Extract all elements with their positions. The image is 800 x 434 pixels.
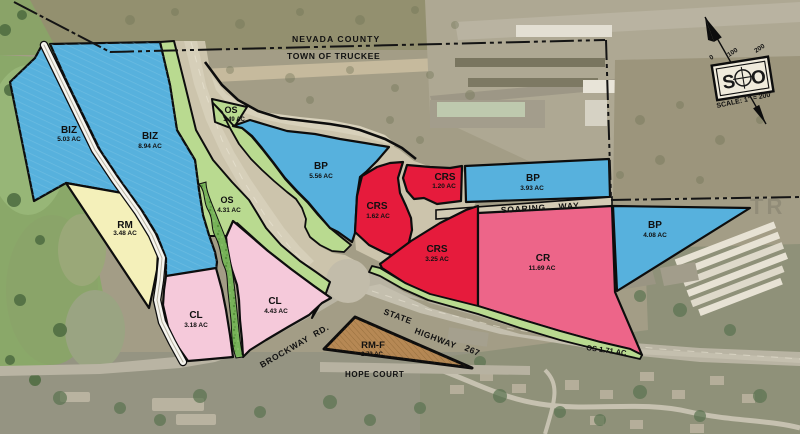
svg-text:3.93 AC: 3.93 AC	[520, 185, 544, 192]
svg-text:5.56 AC: 5.56 AC	[309, 173, 333, 180]
svg-text:CR: CR	[536, 253, 551, 264]
svg-text:CL: CL	[268, 296, 281, 307]
svg-text:CRS: CRS	[426, 244, 447, 255]
svg-text:BP: BP	[648, 220, 662, 231]
svg-text:1.62 AC: 1.62 AC	[366, 213, 390, 220]
svg-text:BP: BP	[314, 161, 328, 172]
svg-text:4.08 AC: 4.08 AC	[643, 232, 667, 239]
svg-text:TOWN OF TRUCKEE: TOWN OF TRUCKEE	[287, 51, 380, 61]
svg-text:1.20 AC: 1.20 AC	[432, 183, 456, 190]
svg-text:CL: CL	[189, 310, 202, 321]
svg-text:BIZ: BIZ	[61, 125, 77, 136]
svg-text:NEVADA COUNTY: NEVADA COUNTY	[292, 34, 380, 44]
svg-text:RM-F: RM-F	[361, 340, 385, 351]
svg-text:2.73 AC: 2.73 AC	[361, 352, 383, 358]
svg-text:BP: BP	[526, 173, 540, 184]
svg-text:1.49 AC: 1.49 AC	[223, 117, 245, 123]
svg-text:4.31 AC: 4.31 AC	[217, 207, 241, 214]
svg-text:CRS: CRS	[434, 172, 455, 183]
svg-text:3.18 AC: 3.18 AC	[184, 322, 208, 329]
svg-text:11.69 AC: 11.69 AC	[529, 265, 556, 272]
svg-text:OS: OS	[220, 195, 233, 205]
svg-text:3.48 AC: 3.48 AC	[113, 230, 137, 237]
svg-text:HOPE COURT: HOPE COURT	[345, 370, 404, 379]
svg-text:OS: OS	[224, 105, 237, 115]
svg-text:5.03 AC: 5.03 AC	[57, 136, 81, 143]
svg-text:3.25 AC: 3.25 AC	[425, 256, 449, 263]
svg-text:CRS: CRS	[366, 201, 387, 212]
svg-text:4.43 AC: 4.43 AC	[264, 308, 288, 315]
svg-text:BIZ: BIZ	[142, 131, 158, 142]
svg-text:8.94 AC: 8.94 AC	[138, 143, 162, 150]
